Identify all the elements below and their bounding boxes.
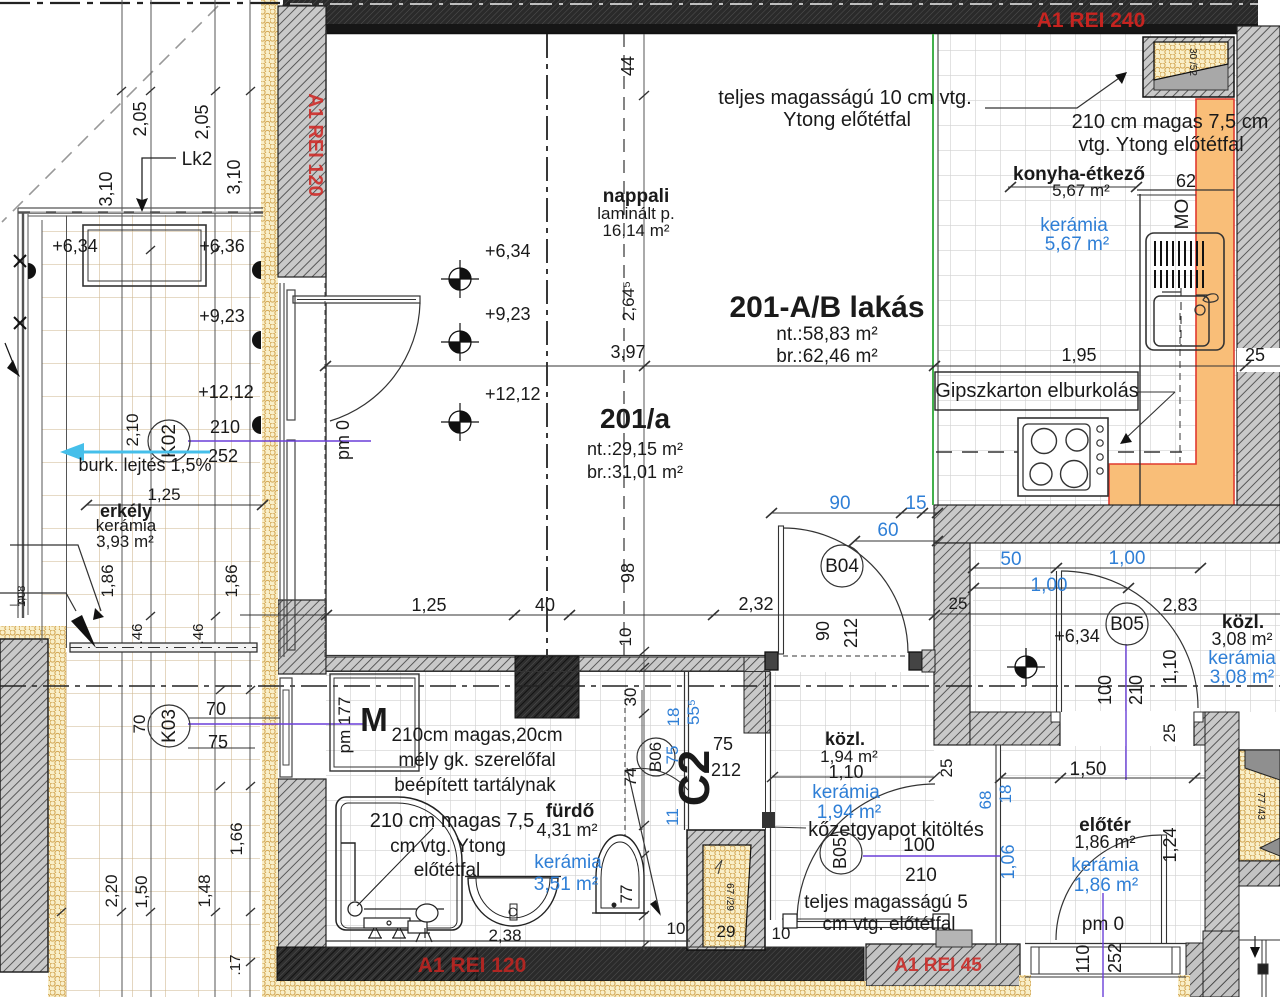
svg-text:18: 18 (664, 708, 683, 727)
svg-text:A1 REI 120: A1 REI 120 (304, 93, 326, 196)
svg-text:50: 50 (1000, 549, 1021, 570)
svg-text:68: 68 (976, 791, 995, 810)
svg-text:55⁵: 55⁵ (684, 699, 703, 725)
svg-text:1,10: 1,10 (1160, 649, 1180, 684)
svg-text:98: 98 (618, 563, 638, 583)
svg-text:75: 75 (663, 746, 682, 765)
svg-text:br.:62,46 m²: br.:62,46 m² (776, 346, 877, 367)
svg-text:Lk2: Lk2 (182, 149, 213, 170)
svg-text:74: 74 (621, 768, 640, 787)
svg-text:5,67 m²: 5,67 m² (1052, 181, 1110, 200)
svg-text:210 cm magas 7,5: 210 cm magas 7,5 (370, 810, 535, 832)
svg-text:beépített tartálynak: beépített tartálynak (394, 775, 556, 796)
svg-text:1,66: 1,66 (227, 822, 246, 855)
svg-text:Ytong előtétfal: Ytong előtétfal (783, 109, 911, 131)
svg-text:3,93 m²: 3,93 m² (96, 532, 154, 551)
svg-text:br.:31,01 m²: br.:31,01 m² (587, 462, 683, 482)
svg-text:77: 77 (617, 885, 636, 904)
svg-text:1,06: 1,06 (998, 844, 1018, 879)
svg-text:teljes magasságú 10 cm vtg.: teljes magasságú 10 cm vtg. (718, 87, 971, 109)
svg-text:1,48: 1,48 (195, 874, 214, 907)
svg-text:210: 210 (905, 865, 937, 886)
svg-text:25: 25 (949, 594, 968, 613)
svg-text:75: 75 (713, 734, 733, 754)
svg-text:2,64⁵: 2,64⁵ (619, 281, 638, 321)
svg-text:10: 10 (667, 919, 686, 938)
svg-text:210 cm magas 7,5 cm: 210 cm magas 7,5 cm (1072, 111, 1269, 133)
svg-text:Gipszkarton elburkolás: Gipszkarton elburkolás (935, 380, 1138, 402)
svg-text:kerámia: kerámia (1071, 855, 1139, 876)
svg-text:vtg. Ytong előtétfal: vtg. Ytong előtétfal (1078, 134, 1243, 156)
svg-text:252: 252 (208, 446, 238, 466)
svg-text:2,05: 2,05 (130, 101, 150, 136)
svg-text:210: 210 (1126, 675, 1146, 705)
svg-text:teljes magasságú 5: teljes magasságú 5 (804, 892, 968, 913)
svg-text:B04: B04 (825, 556, 859, 577)
svg-text:1,00: 1,00 (1031, 575, 1068, 596)
svg-text:.17: .17 (227, 955, 244, 976)
svg-text:pm 0: pm 0 (1082, 914, 1124, 935)
svg-text:.46: .46 (129, 624, 146, 645)
svg-text:44: 44 (618, 56, 638, 76)
svg-text:+6,34: +6,34 (52, 236, 98, 256)
svg-text:67 /29: 67 /29 (724, 883, 735, 911)
svg-text:30: 30 (621, 688, 640, 707)
svg-text:A1 REI 120: A1 REI 120 (418, 954, 527, 977)
svg-text:3,51 m²: 3,51 m² (534, 874, 598, 895)
svg-text:1,50: 1,50 (1070, 759, 1107, 780)
svg-text:29: 29 (717, 922, 736, 941)
svg-text:70: 70 (130, 715, 149, 734)
svg-text:+6,34: +6,34 (485, 241, 531, 261)
svg-text:+9,23: +9,23 (199, 306, 245, 326)
svg-text:3,08 m²: 3,08 m² (1210, 667, 1274, 688)
svg-text:16,14 m²: 16,14 m² (602, 221, 669, 240)
svg-text:90: 90 (813, 621, 833, 641)
svg-text:70: 70 (206, 699, 226, 719)
svg-text:110: 110 (1073, 945, 1093, 974)
svg-text:77 /43: 77 /43 (1255, 792, 1266, 820)
svg-text:212: 212 (711, 760, 741, 780)
svg-text:M: M (360, 701, 388, 738)
svg-text:fürdő: fürdő (546, 801, 595, 822)
svg-text:1,08: 1,08 (16, 586, 28, 607)
svg-text:B05: B05 (1110, 614, 1144, 635)
svg-text:B05: B05 (830, 837, 850, 869)
svg-text:25: 25 (937, 759, 956, 778)
svg-text:kőzetgyapot kitöltés: kőzetgyapot kitöltés (808, 819, 984, 841)
svg-text:mély gk. szerelőfal: mély gk. szerelőfal (398, 750, 555, 771)
svg-text:+12,12: +12,12 (485, 384, 541, 404)
svg-text:2,83: 2,83 (1162, 595, 1197, 615)
svg-text:25: 25 (1245, 345, 1265, 365)
svg-text:100: 100 (1095, 675, 1115, 705)
svg-text:2,32: 2,32 (738, 594, 773, 614)
svg-text:252: 252 (1105, 943, 1125, 973)
svg-text:pm 177: pm 177 (335, 697, 354, 754)
svg-text:közl.: közl. (825, 729, 865, 749)
svg-text:212: 212 (841, 618, 861, 648)
svg-text:1,50: 1,50 (132, 875, 151, 908)
svg-text:3,97: 3,97 (610, 342, 645, 362)
svg-text:5,67 m²: 5,67 m² (1045, 234, 1109, 255)
svg-text:62: 62 (1176, 171, 1196, 191)
svg-text:2,05: 2,05 (192, 104, 212, 139)
svg-text:1,86 m²: 1,86 m² (1074, 832, 1135, 852)
svg-text:2,20: 2,20 (102, 874, 121, 907)
svg-text:1,86: 1,86 (222, 564, 241, 597)
svg-text:1,25: 1,25 (147, 485, 180, 504)
svg-text:+12,12: +12,12 (198, 382, 254, 402)
svg-text:18: 18 (996, 785, 1015, 804)
svg-text:cm vtg. előtétfal: cm vtg. előtétfal (822, 914, 955, 935)
svg-text:kerámia: kerámia (812, 782, 880, 803)
svg-text:3,08 m²: 3,08 m² (1211, 629, 1272, 649)
svg-text:3,10: 3,10 (224, 159, 244, 194)
svg-text:A1 REI 45: A1 REI 45 (894, 955, 982, 976)
svg-text:nt.:58,83 m²: nt.:58,83 m² (776, 324, 877, 345)
svg-text:90: 90 (829, 493, 850, 514)
svg-text:előtétfal: előtétfal (414, 860, 481, 881)
svg-text:nt.:29,15 m²: nt.:29,15 m² (587, 439, 683, 459)
svg-text:1,95: 1,95 (1061, 345, 1096, 365)
svg-text:4,31 m²: 4,31 m² (536, 820, 597, 840)
svg-text:15: 15 (905, 493, 926, 514)
svg-text:100: 100 (903, 835, 935, 856)
svg-text:11: 11 (663, 808, 682, 826)
svg-text:+6,34: +6,34 (1054, 626, 1100, 646)
svg-text:75: 75 (208, 732, 228, 752)
svg-text:2,38: 2,38 (488, 926, 521, 945)
svg-text:10: 10 (772, 924, 791, 943)
svg-text:40: 40 (535, 595, 555, 615)
svg-text:cm vtg. Ytong: cm vtg. Ytong (390, 836, 506, 857)
svg-text:1,00: 1,00 (1109, 548, 1146, 569)
svg-text:+9,23: +9,23 (485, 304, 531, 324)
svg-text:K03: K03 (159, 709, 180, 743)
svg-text:210cm magas,20cm: 210cm magas,20cm (391, 725, 562, 746)
svg-text:1,25: 1,25 (411, 595, 446, 615)
svg-text:60: 60 (877, 520, 898, 541)
svg-text:kerámia: kerámia (1208, 648, 1276, 669)
svg-text:kerámia: kerámia (534, 852, 602, 873)
svg-text:1,86: 1,86 (98, 564, 117, 597)
svg-text:.46: .46 (190, 624, 207, 645)
svg-text:201/a: 201/a (600, 403, 670, 434)
svg-text:10: 10 (616, 628, 635, 647)
svg-text:201-A/B lakás: 201-A/B lakás (729, 291, 924, 324)
svg-text:A1 REI 240: A1 REI 240 (1037, 9, 1146, 32)
svg-text:kerámia: kerámia (1040, 215, 1108, 236)
svg-text:pm 0: pm 0 (333, 420, 353, 460)
svg-text:30 /52: 30 /52 (1187, 48, 1198, 76)
svg-text:25: 25 (1160, 724, 1179, 743)
svg-text:burk. lejtés 1,5%: burk. lejtés 1,5% (78, 455, 211, 475)
svg-text:3,10: 3,10 (96, 171, 116, 206)
svg-text:1,24: 1,24 (1160, 827, 1180, 862)
svg-text:210: 210 (210, 417, 240, 437)
svg-text:MO: MO (1172, 199, 1193, 230)
svg-text:1,86 m²: 1,86 m² (1074, 875, 1138, 896)
svg-text:+6,36: +6,36 (199, 236, 245, 256)
svg-text:1,10: 1,10 (828, 762, 863, 782)
svg-text:2,10: 2,10 (123, 413, 142, 446)
